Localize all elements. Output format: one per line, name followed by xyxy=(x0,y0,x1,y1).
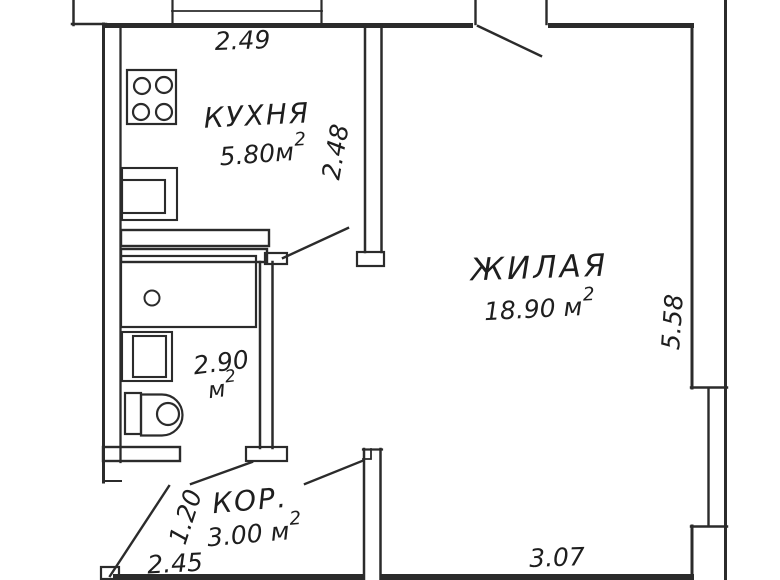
bathroom-door-swing xyxy=(191,462,252,484)
entrance-door-swing xyxy=(478,26,541,56)
bathroom-bottom-wall xyxy=(103,447,180,461)
kitchen-door-swing xyxy=(283,228,348,258)
kitchen-window-recess xyxy=(172,0,322,23)
outer-wall-top xyxy=(104,23,694,28)
kitchen-width-dim: 2.49 xyxy=(205,27,281,55)
kitchen-bottom-wall xyxy=(121,230,269,246)
living-width-dim: 3.07 xyxy=(522,544,593,571)
floor-plan: 2.49 КУХНЯ 5.80м2 2.48 ЖИЛАЯ 18.90 м2 5.… xyxy=(0,0,780,580)
corridor-living-wall xyxy=(363,449,382,580)
corridor-width-dim: 2.45 xyxy=(139,549,210,578)
bathtub-icon xyxy=(121,256,256,327)
kitchen-sink-icon xyxy=(122,168,177,220)
washing-machine-icon xyxy=(122,332,172,381)
kitchen-living-wall xyxy=(357,25,384,266)
living-label: ЖИЛАЯ xyxy=(462,250,618,286)
entrance-doorway-top xyxy=(476,0,547,24)
outer-wall-top-left xyxy=(72,0,106,25)
stove-icon xyxy=(127,70,176,124)
living-window xyxy=(691,388,727,527)
outer-wall-left xyxy=(103,24,121,482)
living-depth-dim: 5.58 xyxy=(658,286,689,358)
toilet-icon xyxy=(125,393,183,436)
living-door-swing xyxy=(305,461,362,484)
